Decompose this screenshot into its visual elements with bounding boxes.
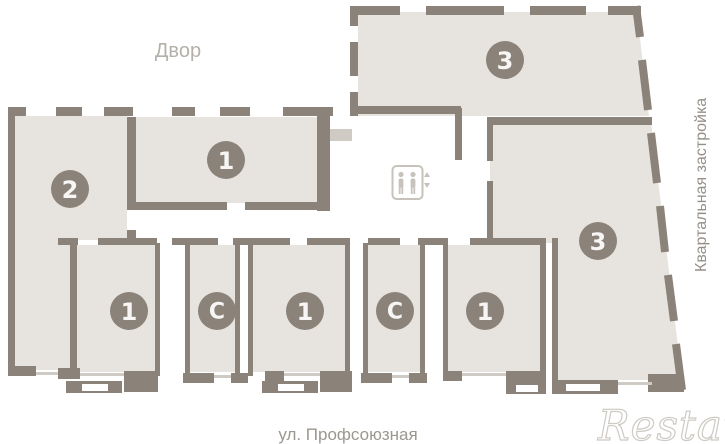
unit-badge-3-top: 3: [486, 41, 524, 79]
side-street-label: Квартальная застройка: [693, 98, 710, 272]
unit-badge-label: 3: [497, 47, 514, 75]
unit-badge-1-bottom-2: 1: [286, 292, 324, 330]
elevator-arrows-icon: [424, 172, 430, 188]
unit-badge-c-bottom-1: С: [198, 292, 236, 330]
street-label: ул. Профсоюзная: [278, 425, 417, 444]
unit-badge-1-top: 1: [207, 141, 245, 179]
unit-badge-label: С: [387, 300, 403, 325]
unit-badge-label: 1: [297, 298, 314, 326]
floor-plan-canvas: 2 1 3 1 С 1 С 1: [0, 0, 725, 444]
unit-badge-3-right: 3: [579, 222, 617, 260]
unit-badge-label: 3: [590, 228, 607, 256]
unit-badge-c-bottom-2: С: [376, 292, 414, 330]
unit-badge-1-bottom-1: 1: [110, 292, 148, 330]
elevator-icon: [393, 166, 431, 199]
unit-badge-2-left: 2: [51, 170, 89, 208]
elevator-person-left: [398, 172, 403, 194]
unit-badge-label: 1: [477, 298, 494, 326]
elevator-person-right: [410, 172, 415, 194]
unit-badge-label: 1: [121, 298, 138, 326]
unit-badge-label: С: [209, 300, 225, 325]
watermark: Restate: [597, 401, 725, 444]
courtyard-notch-wall: [330, 129, 352, 141]
floor-plan: 2 1 3 1 С 1 С 1: [0, 0, 725, 444]
yard-label: Двор: [155, 40, 201, 62]
unit-badge-1-bottom-3: 1: [466, 292, 504, 330]
unit-badge-label: 1: [218, 147, 235, 175]
unit-badge-label: 2: [62, 176, 79, 204]
